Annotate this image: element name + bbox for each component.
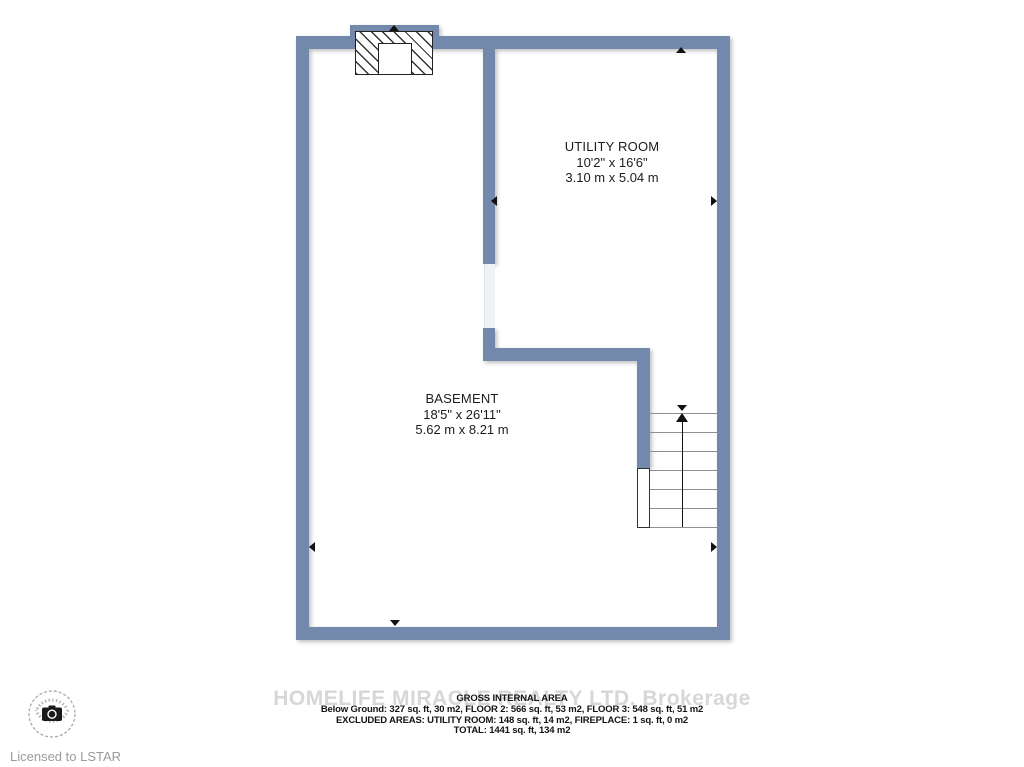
arrow-down-bottom-icon [390,620,400,626]
utility-room-name: UTILITY ROOM [527,139,697,155]
stair-direction-line [682,421,683,527]
interior-wall-divider-upper [483,49,495,264]
license-text: Licensed to LSTAR [10,749,121,764]
stair-up-arrow-icon [676,413,688,422]
basement-label: BASEMENT 18'5" x 26'11" 5.62 m x 8.21 m [377,391,547,438]
interior-wall-stairs [637,361,650,468]
arrow-up-fireplace-icon [389,25,399,31]
outer-wall-right [717,36,730,640]
stair-top-marker-icon [677,405,687,411]
gross-internal-area-block: GROSS INTERNAL AREA Below Ground: 327 sq… [232,694,792,737]
arrow-right-basement-icon [711,542,717,552]
basement-name: BASEMENT [377,391,547,407]
stair-door-leaf [637,468,650,528]
arrow-left-utility-icon [491,196,497,206]
fireplace-firebox [378,43,412,75]
arrow-right-utility-icon [711,196,717,206]
door-opening [484,264,495,328]
basement-dims-metric: 5.62 m x 8.21 m [377,422,547,438]
area-line-floors: Below Ground: 327 sq. ft, 30 m2, FLOOR 2… [232,705,792,716]
area-line-total: TOTAL: 1441 sq. ft, 134 m2 [232,726,792,737]
utility-room-dims-imperial: 10'2" x 16'6" [527,155,697,171]
utility-room-dims-metric: 3.10 m x 5.04 m [527,170,697,186]
camera-stamp-icon [22,684,82,744]
staircase-treads [650,413,717,528]
arrow-up-topright-icon [676,47,686,53]
outer-wall-left [296,36,309,640]
arrow-left-basement-icon [309,542,315,552]
utility-room-label: UTILITY ROOM 10'2" x 16'6" 3.10 m x 5.04… [527,139,697,186]
wall-layer [0,0,1024,767]
interior-wall-horizontal [483,348,650,361]
outer-wall-bottom [296,627,730,640]
floorplan-page: UTILITY ROOM 10'2" x 16'6" 3.10 m x 5.04… [0,0,1024,767]
basement-dims-imperial: 18'5" x 26'11" [377,407,547,423]
